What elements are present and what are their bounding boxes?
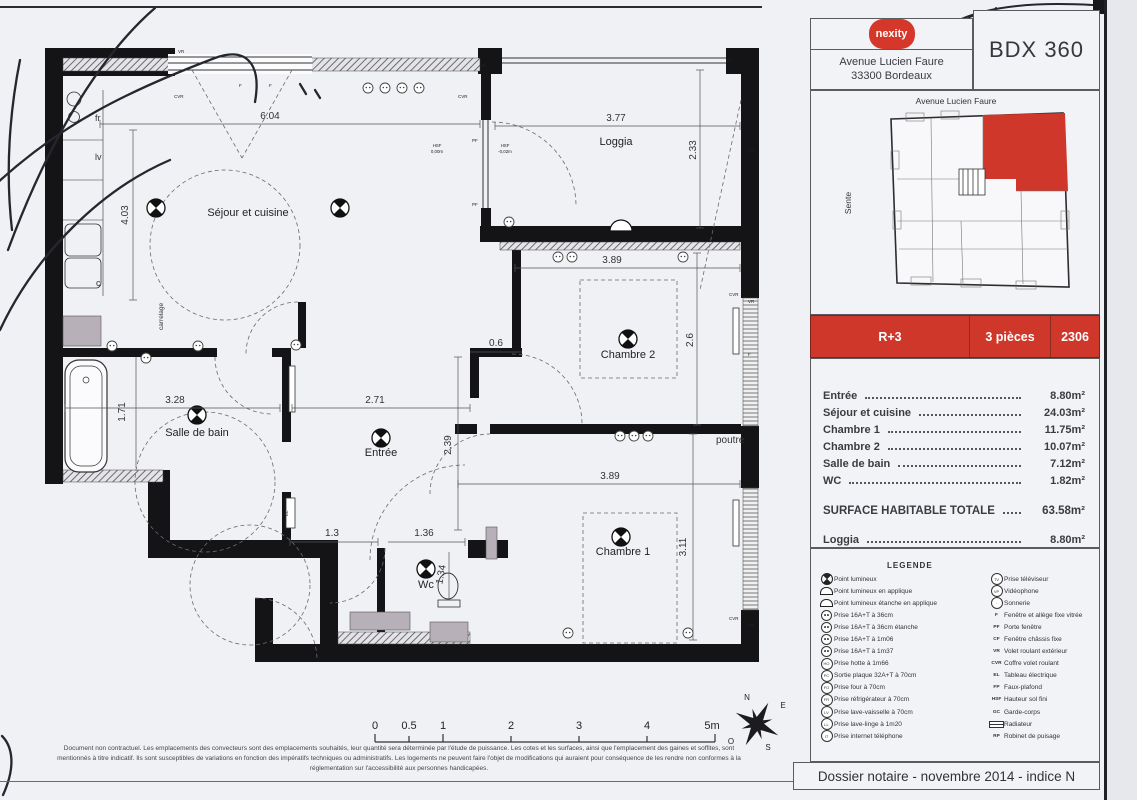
areas-box: Entrée8.80m² Séjour et cuisine24.03m² Ch… — [810, 358, 1100, 548]
tag-gc: GC — [726, 58, 734, 63]
legend-item-label: Vidéophone — [1004, 588, 1039, 595]
legend-item-label: Prise four à 70cm — [834, 684, 885, 691]
project-title-box: BDX 360 — [973, 10, 1100, 90]
area-row-sejour: Séjour et cuisine24.03m² — [823, 402, 1085, 419]
dim-wc-w: 1.36 — [414, 528, 434, 539]
dossier-bar: Dossier notaire - novembre 2014 - indice… — [793, 762, 1100, 790]
anno-carrelage: carrelage — [158, 303, 165, 330]
legend-item-label: Prise 16A+T à 1m06 — [834, 636, 893, 643]
disclaimer: Document non contractuel. Les emplacemen… — [20, 744, 778, 774]
dim-wc-h: 1.34 — [434, 564, 448, 586]
internet-phone-socket-icon: IT — [821, 730, 833, 742]
legend-title: LEGENDE — [887, 561, 933, 570]
socket-icon — [821, 634, 832, 645]
finished-floor-code: HSF — [992, 697, 1002, 702]
dim-entree-w: 2.71 — [365, 395, 385, 406]
shutter-box-code: CVR — [991, 661, 1001, 666]
legend-item-label: Porte fenêtre — [1004, 624, 1042, 631]
legend-item-label: Prise lave-linge à 1m20 — [834, 721, 902, 728]
tag-pf: PF — [472, 138, 478, 143]
svg-text:1: 1 — [440, 720, 446, 732]
tv-socket-icon: TV — [991, 573, 1003, 585]
dim-sejour-w: 6.04 — [260, 111, 280, 122]
guardrail-code: GC — [993, 710, 1000, 715]
windows — [168, 54, 726, 208]
tag-f2: F — [269, 83, 272, 88]
legend-item-label: Faux-plafond — [1004, 684, 1042, 691]
tag-cvr4: CVR — [729, 616, 739, 621]
socket-icon — [821, 646, 832, 657]
legend-item-label: Robinet de puisage — [1004, 733, 1060, 740]
legend-item-label: Coffre volet roulant — [1004, 660, 1059, 667]
area-total-row: SURFACE HABITABLE TOTALE63.58m² — [823, 500, 1085, 517]
area-row-sdb: Salle de bain7.12m² — [823, 453, 1085, 470]
applique-etanche-icon — [820, 599, 833, 607]
legend-item-label: Prise hotte à 1m66 — [834, 660, 889, 667]
tag-vr3: VR — [748, 299, 755, 304]
project-title: BDX 360 — [974, 11, 1099, 89]
dossier-text: Dossier notaire - novembre 2014 - indice… — [818, 769, 1075, 784]
legend-item-label: Sortie plaque 32A+T à 70cm — [834, 672, 916, 679]
floor-plan: Séjour et cuisine Loggia Chambre 2 Salle… — [0, 0, 800, 800]
anno-fr: fr — [95, 113, 101, 123]
room-label-entree: Entrée — [365, 447, 397, 459]
legend-left-column: Point lumineux Point lumineux en appliqu… — [819, 573, 937, 742]
light-symbols — [147, 199, 637, 578]
cooktop-outlet-icon: PC — [821, 670, 833, 682]
french-door-code: PF — [993, 625, 999, 630]
legend-item-label: Point lumineux étanche en applique — [834, 600, 937, 607]
tag-vr2: VR — [480, 63, 487, 68]
svg-text:2: 2 — [508, 720, 514, 732]
unit-rooms: 3 pièces — [970, 316, 1051, 357]
legend-item-label: Prise internet téléphone — [834, 733, 903, 740]
tag-gc2: GC — [748, 148, 756, 153]
legend-item-label: Prise 16A+T à 36cm étanche — [834, 624, 918, 631]
dim-ch1-h: 3.11 — [678, 537, 689, 556]
dim-sdb-h: 1.71 — [117, 402, 128, 422]
fridge-socket-icon: FR — [821, 694, 833, 706]
socket-icon — [821, 610, 832, 621]
page-edge-margin — [1107, 0, 1137, 800]
area-row-wc: WC1.82m² — [823, 470, 1085, 487]
key-plan-box: Avenue Lucien Faure Sente — [810, 90, 1100, 315]
water-tap-code: RP — [993, 734, 1000, 739]
dim-ch2-h: 2.6 — [685, 333, 696, 347]
legend-item-label: Prise lave-vaisselle à 70cm — [834, 709, 913, 716]
disclaimer-line3: réglementation sur l'accessibilité aux p… — [20, 764, 778, 774]
svg-text:0.5: 0.5 — [401, 720, 416, 732]
svg-text:N: N — [744, 693, 750, 702]
key-plan: Avenue Lucien Faure Sente — [811, 91, 1099, 314]
unit-number: 2306 — [1051, 316, 1099, 357]
room-label-loggia: Loggia — [599, 136, 633, 148]
svg-text:4: 4 — [644, 720, 650, 732]
anno-hsf-sejour-val: 0,00m — [431, 149, 444, 154]
scale-labels: 0 0.5 1 2 3 4 5m — [372, 720, 720, 732]
anno-hsf-loggia-val: -0,02m — [498, 149, 512, 154]
legend-item-label: Prise 16A+T à 36cm — [834, 612, 893, 619]
area-row-chambre1: Chambre 111.75m² — [823, 419, 1085, 436]
svg-text:5m: 5m — [704, 720, 719, 732]
room-label-wc: Wc — [418, 579, 434, 591]
room-label-chambre1: Chambre 1 — [596, 546, 650, 558]
radiator-icon — [989, 721, 1004, 728]
electrical-panel-code: EL — [993, 673, 999, 678]
legend-item-label: Sonnerie — [1004, 600, 1030, 607]
disclaimer-line1: Document non contractuel. Les emplacemen… — [20, 744, 778, 754]
unit-floor: R+3 — [811, 316, 970, 357]
legend-item-label: Radiateur — [1004, 721, 1032, 728]
anno-hsf-sejour: HSF — [433, 143, 442, 148]
legend-item-label: Hauteur sol fini — [1004, 696, 1047, 703]
tag-cvr3: CVR — [729, 292, 739, 297]
point-lumineux-icon — [821, 573, 833, 585]
address-line2: 33300 Bordeaux — [811, 69, 972, 83]
tag-vr4: VR — [748, 623, 755, 628]
area-loggia-row: Loggia8.80m² — [823, 529, 1085, 546]
area-row-chambre2: Chambre 210.07m² — [823, 436, 1085, 453]
legend-item-label: Prise 16A+T à 1m37 — [834, 648, 893, 655]
area-row-entree: Entrée8.80m² — [823, 385, 1085, 402]
address-line1: Avenue Lucien Faure — [811, 55, 972, 69]
dim-couloir: 0.6 — [489, 338, 503, 349]
fixed-frame-code: CF — [993, 637, 999, 642]
legend-item-label: Point lumineux en applique — [834, 588, 912, 595]
dim-loggia-w: 3.77 — [606, 113, 626, 124]
anno-hsf-loggia: HSF — [501, 143, 510, 148]
dim-loggia-h: 2.33 — [688, 140, 699, 160]
applique-icon — [820, 587, 833, 595]
legend-right-column: TVPrise téléviseur VPVidéophone ·Sonneri… — [989, 573, 1082, 742]
dishwasher-socket-icon: LV — [821, 706, 833, 718]
footer-rule — [0, 781, 793, 782]
anno-lv: lv — [95, 152, 102, 162]
scale-bar — [375, 734, 715, 742]
nexity-logo: nexity — [869, 19, 915, 49]
legend-item-label: Volet roulant extérieur — [1004, 648, 1067, 655]
legend-item-label: Garde-corps — [1004, 709, 1040, 716]
false-ceiling-code: FP — [993, 685, 999, 690]
fixed-window-code: F — [995, 613, 998, 618]
unit-bar: R+3 3 pièces 2306 — [810, 315, 1100, 358]
key-plan-street-top: Avenue Lucien Faure — [916, 96, 997, 106]
tag-vr: VR — [178, 49, 185, 54]
dim-dress-w: 1.3 — [325, 528, 339, 539]
dim-ch2-w: 3.89 — [602, 255, 622, 266]
disclaimer-line2: mentionnés à titre indicatif. Ils sont s… — [20, 754, 778, 764]
anno-poutre: poutre — [716, 435, 745, 446]
dim-ch1-w: 3.89 — [600, 471, 620, 482]
logo-address-box: nexity Avenue Lucien Faure 33300 Bordeau… — [810, 18, 973, 90]
tag-pf2: PF — [472, 202, 478, 207]
tag-cvr2: CVR — [458, 94, 468, 99]
roller-shutter-code: VR — [993, 649, 1000, 654]
room-label-sejour: Séjour et cuisine — [207, 207, 288, 219]
washer-socket-icon: LL — [821, 718, 833, 730]
tag-cvr: CVR — [174, 94, 184, 99]
dim-entree-h: 2.39 — [443, 435, 454, 455]
legend-item-label: Fenêtre et allège fixe vitrée — [1004, 612, 1082, 619]
tag-el: EL — [284, 510, 289, 516]
key-plan-street-left: Sente — [843, 192, 853, 214]
socket-icon — [821, 622, 832, 633]
videophone-icon: VP — [991, 585, 1003, 597]
hood-socket-icon: HO — [821, 658, 833, 670]
svg-text:0: 0 — [372, 720, 378, 732]
legend-item-label: Fenêtre châssis fixe — [1004, 636, 1062, 643]
room-label-sdb: Salle de bain — [165, 427, 229, 439]
oven-socket-icon: FO — [821, 682, 833, 694]
legend-box: LEGENDE Point lumineux Point lumineux en… — [810, 548, 1100, 762]
anno-c: c — [96, 278, 101, 288]
legend-item-label: Prise réfrigérateur à 70cm — [834, 696, 909, 703]
dim-sdb-w: 3.28 — [165, 395, 185, 406]
legend-item-label: Prise téléviseur — [1004, 576, 1048, 583]
legend-item-label: Point lumineux — [834, 576, 877, 583]
nexity-logo-text: nexity — [876, 28, 908, 40]
legend-item-label: Tableau électrique — [1004, 672, 1057, 679]
bell-icon: · — [991, 597, 1003, 609]
tag-f3: F — [748, 352, 751, 357]
room-label-chambre2: Chambre 2 — [601, 349, 655, 361]
tag-f: F — [239, 83, 242, 88]
svg-text:3: 3 — [576, 720, 582, 732]
svg-text:E: E — [780, 701, 785, 710]
dim-sejour-h: 4.03 — [120, 205, 131, 225]
